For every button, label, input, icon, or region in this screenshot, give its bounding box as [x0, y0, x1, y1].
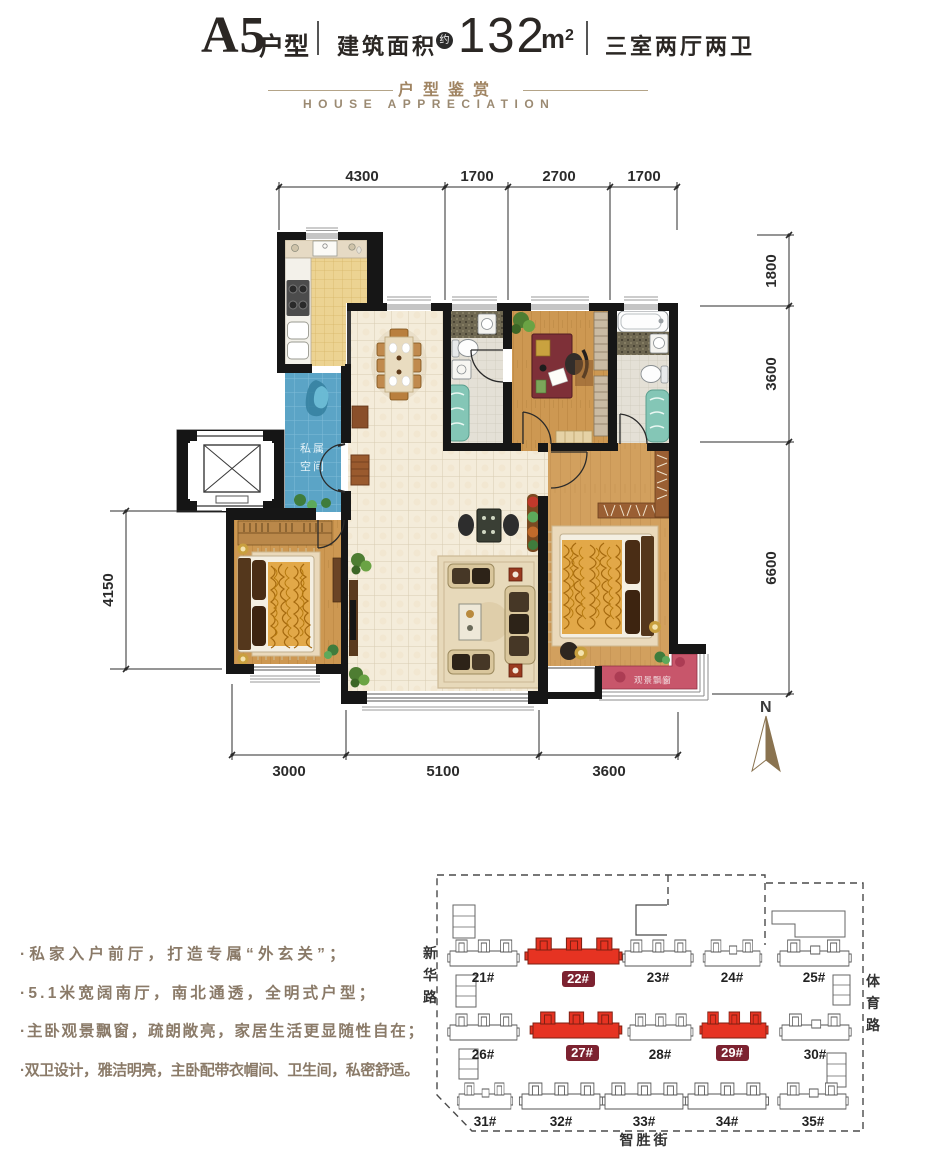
svg-text:N: N: [760, 699, 772, 716]
svg-text:25#: 25#: [803, 970, 826, 985]
svg-text:23#: 23#: [647, 970, 670, 985]
svg-text:30#: 30#: [804, 1047, 827, 1062]
svg-text:27#: 27#: [571, 1045, 593, 1060]
svg-text:空间: 空间: [300, 459, 326, 473]
svg-text:3600: 3600: [763, 357, 780, 390]
svg-text:4150: 4150: [100, 573, 117, 606]
svg-text:33#: 33#: [633, 1114, 656, 1129]
svg-text:路: 路: [866, 1017, 881, 1033]
svg-text:24#: 24#: [721, 970, 744, 985]
svg-text:3000: 3000: [272, 763, 305, 780]
svg-text:1800: 1800: [763, 254, 780, 287]
svg-text:5100: 5100: [426, 763, 459, 780]
svg-text:智胜街: 智胜街: [619, 1132, 671, 1148]
svg-text:育: 育: [866, 995, 880, 1011]
svg-text:34#: 34#: [716, 1114, 739, 1129]
svg-text:观景飘窗: 观景飘窗: [634, 675, 672, 685]
svg-text:28#: 28#: [649, 1047, 672, 1062]
svg-text:1700: 1700: [460, 168, 493, 185]
svg-text:32#: 32#: [550, 1114, 573, 1129]
svg-text:1700: 1700: [627, 168, 660, 185]
svg-text:4300: 4300: [345, 168, 378, 185]
svg-text:私属: 私属: [300, 442, 326, 455]
svg-text:31#: 31#: [474, 1114, 497, 1129]
svg-text:22#: 22#: [567, 971, 589, 986]
svg-text:35#: 35#: [802, 1114, 825, 1129]
svg-text:2700: 2700: [542, 168, 575, 185]
svg-text:3600: 3600: [592, 763, 625, 780]
svg-text:29#: 29#: [721, 1045, 743, 1060]
svg-text:6600: 6600: [763, 551, 780, 584]
svg-text:体: 体: [866, 973, 881, 989]
